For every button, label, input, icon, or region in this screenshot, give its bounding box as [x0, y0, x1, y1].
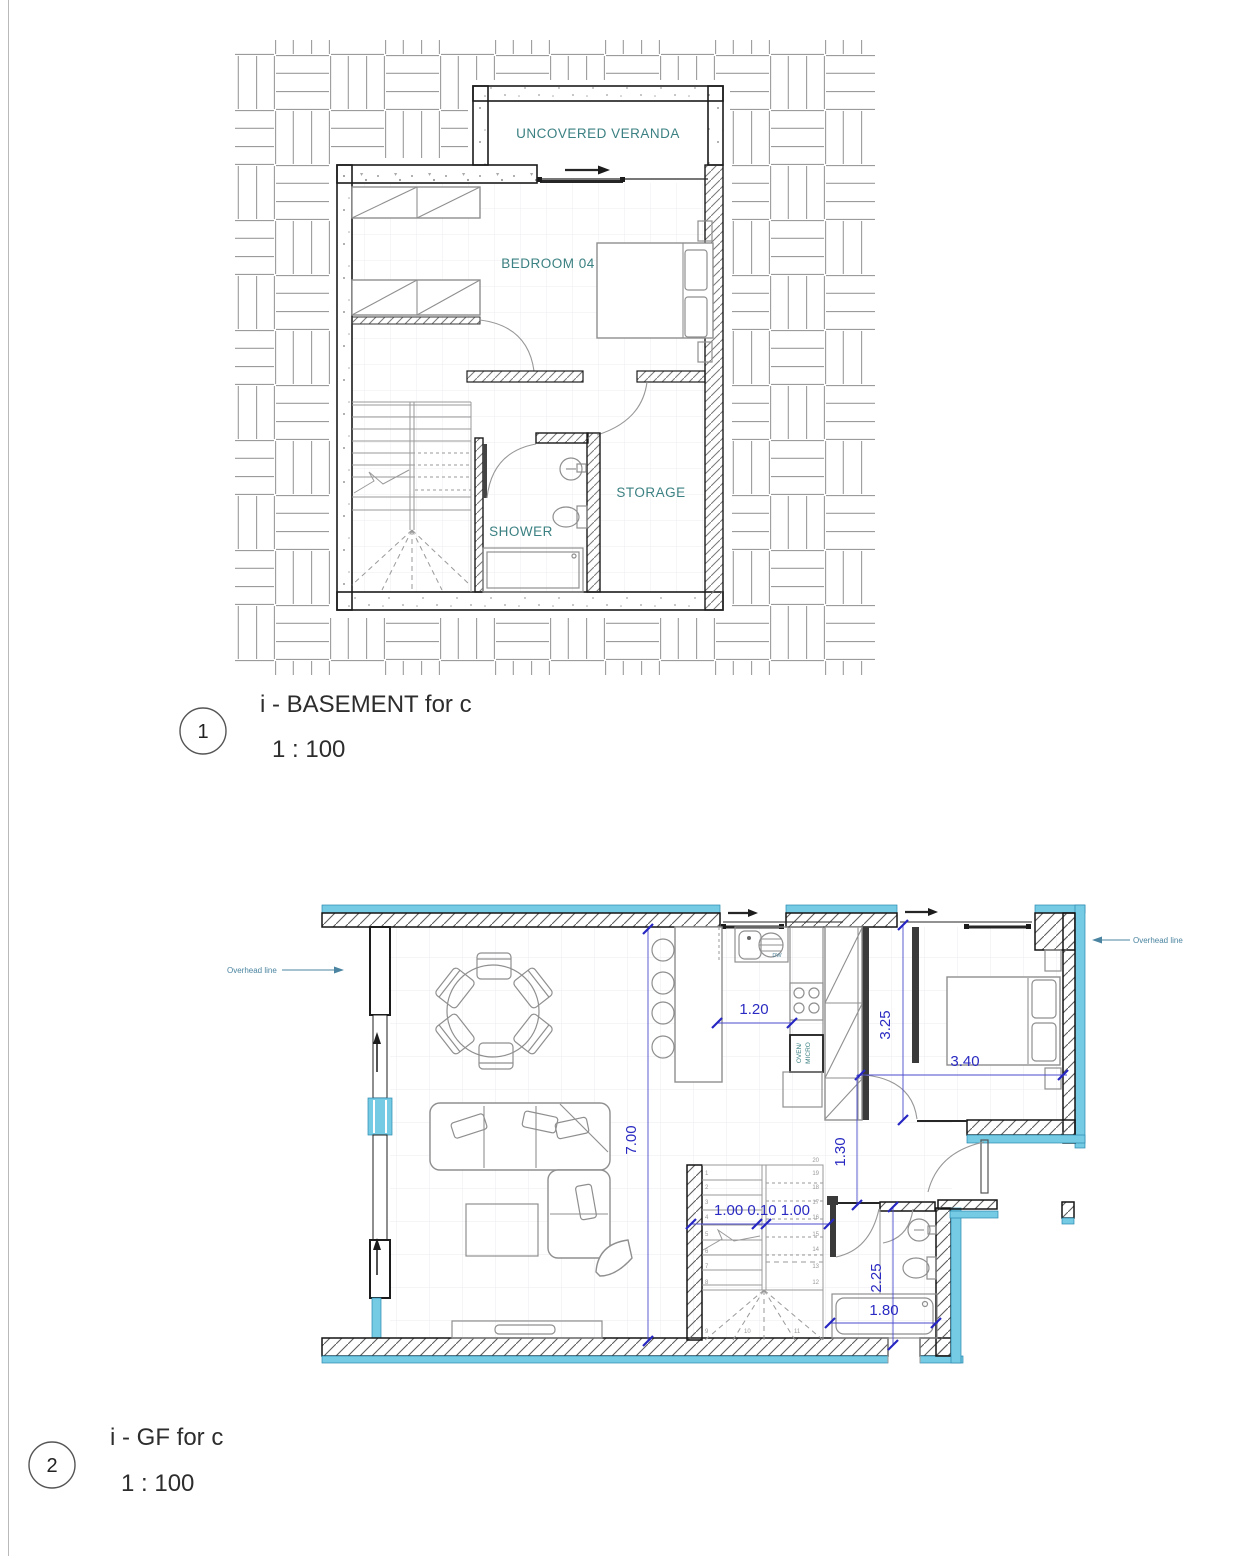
arrow-head-left — [1092, 937, 1102, 944]
basement-outer-walls — [337, 165, 723, 610]
tall-wardrobe — [825, 927, 862, 1120]
svg-text:19: 19 — [812, 1171, 819, 1177]
svg-text:13: 13 — [812, 1264, 819, 1270]
gf-bed — [947, 977, 1060, 1065]
basement-top-wall — [337, 165, 537, 183]
dim-bed-width: 3.40 — [950, 1053, 979, 1070]
shower-door-leaf — [483, 444, 487, 498]
shower-label: SHOWER — [489, 524, 553, 539]
drawing-sheet: UNCOVERED VERANDA BEDROOM 04 SHOWER STOR… — [0, 0, 1257, 1556]
veranda-top-wall — [473, 86, 723, 101]
plan-number: 1 — [197, 721, 208, 743]
dim-living-depth: 7.00 — [623, 1125, 640, 1154]
ground-floor-plan: DW OVEN/ MICRO — [227, 905, 1183, 1363]
hall-door-leaf — [830, 1205, 836, 1257]
entry-door-leaf — [981, 1140, 988, 1193]
veranda-left-wall — [473, 86, 488, 165]
veranda-right-wall — [708, 86, 723, 165]
dim-closet-depth: 3.25 — [877, 1010, 894, 1039]
svg-text:10: 10 — [744, 1329, 751, 1335]
basement-bottom-wall — [337, 592, 723, 610]
gf-title-block: 2 i - GF for c 1 : 100 — [29, 1424, 223, 1497]
svg-text:17: 17 — [812, 1200, 819, 1206]
dim-stair-flights: 1.00 0.10 1.00 — [714, 1202, 810, 1219]
micro-label: MICRO — [805, 1042, 812, 1064]
kitchen-partition-wall — [862, 927, 869, 1120]
veranda-label: UNCOVERED VERANDA — [516, 126, 680, 141]
entry-arrow-head — [928, 908, 938, 916]
storage-label: STORAGE — [616, 485, 685, 500]
svg-text:11: 11 — [794, 1329, 801, 1335]
gf-left-wall — [368, 927, 392, 1338]
kitchen-peninsula — [675, 927, 722, 1082]
gf-opening-2 — [900, 908, 1032, 929]
overhead-line-left: Overhead line — [227, 966, 344, 975]
plan-number: 2 — [46, 1455, 57, 1477]
overhead-line-right: Overhead line — [1092, 936, 1183, 945]
svg-text:18: 18 — [812, 1185, 819, 1191]
svg-text:16: 16 — [812, 1215, 819, 1221]
gf-bottom-wall — [322, 1338, 963, 1363]
dim-bathtub-length: 1.80 — [869, 1302, 898, 1319]
gf-window — [368, 1098, 392, 1135]
dishwasher-label: DW — [772, 953, 782, 959]
svg-text:Overhead line: Overhead line — [227, 966, 277, 975]
svg-text:Overhead line: Overhead line — [1133, 936, 1183, 945]
bedroom04-label: BEDROOM 04 — [501, 256, 595, 271]
basement-right-wall — [705, 165, 723, 610]
svg-text:15: 15 — [812, 1232, 819, 1238]
basement-left-wall — [337, 165, 352, 610]
oven-label: OVEN/ — [796, 1043, 803, 1063]
arrow-head-right — [334, 967, 344, 974]
entry-arrow-head — [748, 909, 758, 917]
dim-kitchen-width: 1.20 — [739, 1001, 768, 1018]
column — [1062, 1202, 1074, 1218]
gf-right-wall — [1063, 905, 1085, 1148]
basement-plan-scale: 1 : 100 — [272, 736, 345, 763]
svg-text:12: 12 — [812, 1280, 819, 1286]
basement-plan-title: i - BASEMENT for c — [260, 691, 472, 718]
bedroom-partition-wall — [912, 927, 919, 1063]
svg-text:20: 20 — [812, 1158, 819, 1164]
basement-plan: UNCOVERED VERANDA BEDROOM 04 SHOWER STOR… — [235, 40, 875, 675]
gf-plan-scale: 1 : 100 — [121, 1470, 194, 1497]
dim-hall-width: 1.30 — [832, 1137, 849, 1166]
floor-plan-drawing: UNCOVERED VERANDA BEDROOM 04 SHOWER STOR… — [0, 0, 1257, 1556]
gf-plan-title: i - GF for c — [110, 1424, 223, 1451]
basement-title-block: 1 i - BASEMENT for c 1 : 100 — [180, 691, 472, 763]
door-hinge-stub — [827, 1196, 838, 1205]
svg-text:14: 14 — [812, 1247, 819, 1253]
dim-bath-depth: 2.25 — [868, 1263, 885, 1292]
